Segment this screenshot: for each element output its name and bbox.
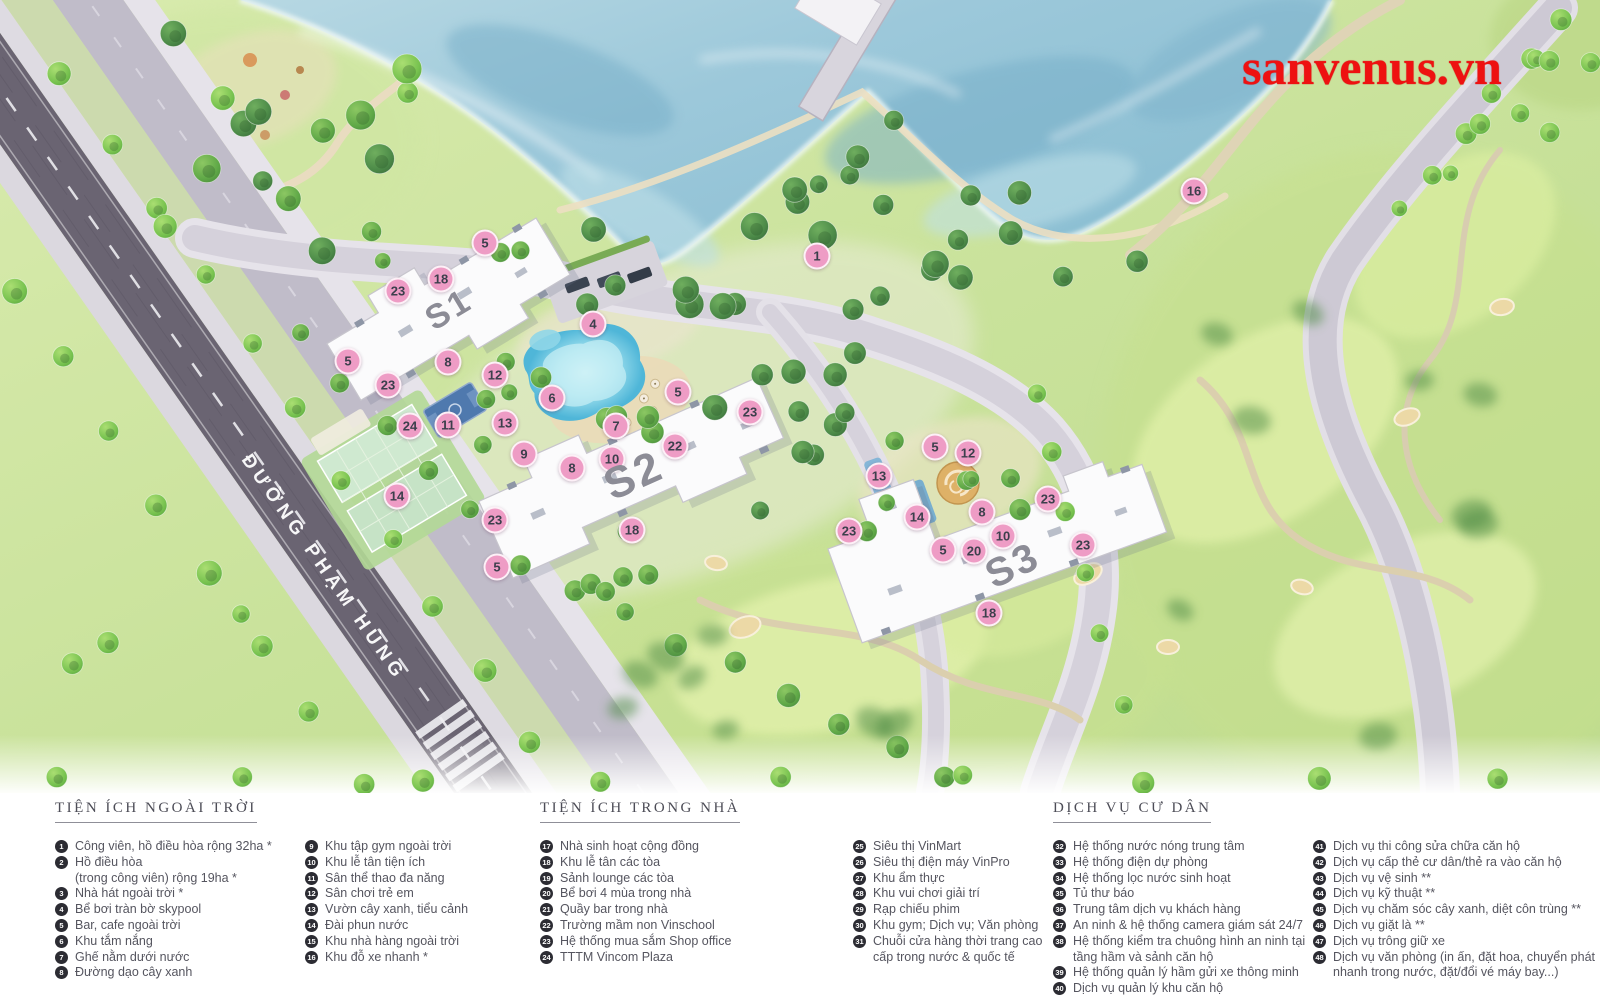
legend-item-text: Khu nhà hàng ngoài trời [325, 934, 459, 948]
legend-item: 2Hồ điều hòa [55, 855, 272, 871]
map-marker-23: 23 [737, 399, 764, 426]
map-marker-14: 14 [904, 504, 931, 531]
legend-item-number: 11 [305, 872, 318, 885]
map-marker-23: 23 [375, 372, 402, 399]
legend-item: 45Dịch vụ chăm sóc cây xanh, diệt côn tr… [1313, 902, 1595, 918]
legend-item-text: Dịch vụ thi công sửa chữa căn hộ [1333, 839, 1520, 853]
legend-item-text: Chuỗi cửa hàng thời trang cao [873, 934, 1042, 948]
legend-section-title-indoor: TIỆN ÍCH TRONG NHÀ [540, 800, 740, 823]
legend-item: 5Bar, cafe ngoài trời [55, 918, 272, 934]
map-marker-23: 23 [385, 278, 412, 305]
legend-item-number: 36 [1053, 903, 1066, 916]
legend-item: 18Khu lễ tân các tòa [540, 855, 731, 871]
legend-item-number: 10 [305, 856, 318, 869]
legend-item-number: 16 [305, 951, 318, 964]
map-marker-13: 13 [492, 410, 519, 437]
map-marker-5: 5 [922, 434, 949, 461]
legend-item-number: 8 [55, 966, 68, 979]
legend-item-number: 39 [1053, 966, 1066, 979]
legend-item: 19Sảnh lounge các tòa [540, 871, 731, 887]
map-marker-5: 5 [665, 379, 692, 406]
legend-item-text: Khu đỗ xe nhanh * [325, 950, 428, 964]
legend-item-text: Khu vui chơi giải trí [873, 886, 980, 900]
legend-item: 11Sân thể thao đa năng [305, 871, 468, 887]
map-marker-4: 4 [580, 311, 607, 338]
legend-item: 7Ghế nằm dưới nước [55, 950, 272, 966]
legend-item-text: Siêu thị VinMart [873, 839, 961, 853]
legend-item-number: 12 [305, 887, 318, 900]
legend-item-text: Khu ẩm thực [873, 871, 945, 885]
legend-item-text: Bể bơi tràn bờ skypool [75, 902, 201, 916]
legend-item: 36Trung tâm dịch vụ khách hàng [1053, 902, 1305, 918]
legend-item: 37An ninh & hệ thống camera giám sát 24/… [1053, 918, 1305, 934]
legend-item-number: 14 [305, 919, 318, 932]
legend-item-text: TTTM Vincom Plaza [560, 950, 673, 964]
legend-item: 48Dịch vụ văn phòng (in ấn, đặt hoa, chu… [1313, 950, 1595, 966]
legend-item: 30Khu gym; Dịch vụ; Văn phòng [853, 918, 1042, 934]
legend-item-number: 25 [853, 840, 866, 853]
legend-item-text: Dịch vụ kỹ thuật ** [1333, 886, 1435, 900]
legend-item-number: 35 [1053, 887, 1066, 900]
legend-item: 10Khu lễ tân tiện ích [305, 855, 468, 871]
legend-item: 24TTTM Vincom Plaza [540, 950, 731, 966]
map-marker-9: 9 [511, 441, 538, 468]
legend-item-number: 34 [1053, 872, 1066, 885]
watermark: sanvenus.vn [1242, 38, 1502, 96]
legend-item-text: Công viên, hồ điều hòa rộng 32ha * [75, 839, 272, 853]
legend-item-text: Khu tập gym ngoài trời [325, 839, 451, 853]
legend-item-number: 18 [540, 856, 553, 869]
map-marker-18: 18 [976, 600, 1003, 627]
legend-item-number: 3 [55, 887, 68, 900]
map-marker-8: 8 [559, 455, 586, 482]
map-marker-16: 16 [1181, 178, 1208, 205]
legend-item-number: 45 [1313, 903, 1326, 916]
legend-item: 20Bể bơi 4 mùa trong nhà [540, 886, 731, 902]
legend-item: 1Công viên, hồ điều hòa rộng 32ha * [55, 839, 272, 855]
legend-item-number: 43 [1313, 872, 1326, 885]
legend-item-number: 40 [1053, 982, 1066, 995]
legend-item-number: 2 [55, 856, 68, 869]
legend-item-text: Ghế nằm dưới nước [75, 950, 189, 964]
legend-item: 46Dịch vụ giặt là ** [1313, 918, 1595, 934]
site-plan-page: 1165182345812236511132472322910814231855… [0, 0, 1600, 1000]
map-marker-1: 1 [804, 243, 831, 270]
legend-item: 28Khu vui chơi giải trí [853, 886, 1042, 902]
legend-item-text: Hệ thống mua sắm Shop office [560, 934, 731, 948]
legend-item: 15Khu nhà hàng ngoài trời [305, 934, 468, 950]
legend-column: 17Nhà sinh hoạt cộng đồng18Khu lễ tân cá… [540, 839, 731, 965]
legend-section-title-outdoor: TIỆN ÍCH NGOÀI TRỜI [55, 800, 257, 823]
legend-item-number: 29 [853, 903, 866, 916]
legend-item: 12Sân chơi trẻ em [305, 886, 468, 902]
legend-item-number: 48 [1313, 951, 1326, 964]
legend-item-number: 13 [305, 903, 318, 916]
legend-item: 26Siêu thị điện máy VinPro [853, 855, 1042, 871]
legend-item-text: Sân thể thao đa năng [325, 871, 445, 885]
legend-item-text-line2: nhanh trong nước, đặt/đổi vé máy bay...) [1313, 965, 1595, 981]
legend-item-text: Bể bơi 4 mùa trong nhà [560, 886, 691, 900]
legend-item-number: 41 [1313, 840, 1326, 853]
map-marker-11: 11 [435, 412, 462, 439]
legend-item-number: 17 [540, 840, 553, 853]
legend-item: 23Hệ thống mua sắm Shop office [540, 934, 731, 950]
legend-item-number: 37 [1053, 919, 1066, 932]
legend-item: 32Hệ thống nước nóng trung tâm [1053, 839, 1305, 855]
legend-item-text-line2: tầng hầm và sảnh căn hộ [1053, 950, 1305, 966]
legend-item-number: 44 [1313, 887, 1326, 900]
legend-item: 34Hệ thống lọc nước sinh hoạt [1053, 871, 1305, 887]
map-marker-7: 7 [603, 413, 630, 440]
legend-item-text: Dịch vụ quản lý khu căn hộ [1073, 981, 1223, 995]
legend-item-text: Dịch vụ chăm sóc cây xanh, diệt côn trùn… [1333, 902, 1581, 916]
legend-column: 1Công viên, hồ điều hòa rộng 32ha *2Hồ đ… [55, 839, 272, 981]
legend-item: 6Khu tắm nắng [55, 934, 272, 950]
legend-item-text: Dịch vụ vệ sinh ** [1333, 871, 1431, 885]
legend-item-text: Khu tắm nắng [75, 934, 153, 948]
legend-item-number: 32 [1053, 840, 1066, 853]
legend-item-number: 6 [55, 935, 68, 948]
legend-item-number: 20 [540, 887, 553, 900]
legend-item-text: Hệ thống lọc nước sinh hoạt [1073, 871, 1231, 885]
legend-item-text: Nhà sinh hoạt cộng đồng [560, 839, 699, 853]
map-marker-12: 12 [955, 440, 982, 467]
legend-item-text: An ninh & hệ thống camera giám sát 24/7 [1073, 918, 1303, 932]
legend-item: 33Hệ thống điện dự phòng [1053, 855, 1305, 871]
legend-column: 41Dịch vụ thi công sửa chữa căn hộ42Dịch… [1313, 839, 1595, 981]
legend-item-number: 5 [55, 919, 68, 932]
legend-item: 14Đài phun nước [305, 918, 468, 934]
map-marker-22: 22 [662, 433, 689, 460]
legend-item-number: 38 [1053, 935, 1066, 948]
map-marker-6: 6 [539, 385, 566, 412]
master-plan-illustration [0, 0, 1600, 795]
legend-item: 38Hệ thống kiểm tra chuông hình an ninh … [1053, 934, 1305, 950]
legend-item-text: Hệ thống kiểm tra chuông hình an ninh tạ… [1073, 934, 1305, 948]
legend-column: 25Siêu thị VinMart26Siêu thị điện máy Vi… [853, 839, 1042, 965]
legend-column: 32Hệ thống nước nóng trung tâm33Hệ thống… [1053, 839, 1305, 997]
legend-item-text: Dịch vụ văn phòng (in ấn, đặt hoa, chuyể… [1333, 950, 1595, 964]
map-marker-13: 13 [866, 463, 893, 490]
legend-item-text: Sân chơi trẻ em [325, 886, 414, 900]
map-marker-12: 12 [482, 362, 509, 389]
map-marker-8: 8 [435, 349, 462, 376]
map-marker-5: 5 [484, 554, 511, 581]
legend-item-number: 15 [305, 935, 318, 948]
map-marker-5: 5 [335, 348, 362, 375]
legend-item-text: Bar, cafe ngoài trời [75, 918, 180, 932]
legend-item-number: 27 [853, 872, 866, 885]
legend-item: 47Dịch vụ trông giữ xe [1313, 934, 1595, 950]
map-marker-5: 5 [930, 537, 957, 564]
legend-item: 13Vườn cây xanh, tiểu cảnh [305, 902, 468, 918]
legend-item-text: Nhà hát ngoài trời * [75, 886, 183, 900]
legend-item: 21Quầy bar trong nhà [540, 902, 731, 918]
legend-item-number: 30 [853, 919, 866, 932]
legend-item-number: 46 [1313, 919, 1326, 932]
legend: TIỆN ÍCH NGOÀI TRỜI TIỆN ÍCH TRONG NHÀ D… [0, 793, 1600, 1000]
legend-item-text: Rạp chiếu phim [873, 902, 960, 916]
legend-item-number: 24 [540, 951, 553, 964]
legend-item-number: 42 [1313, 856, 1326, 869]
legend-item-text: Đường dạo cây xanh [75, 965, 192, 979]
legend-item-text: Trung tâm dịch vụ khách hàng [1073, 902, 1241, 916]
legend-item-text: Vườn cây xanh, tiểu cảnh [325, 902, 468, 916]
legend-section-title-services: DỊCH VỤ CƯ DÂN [1053, 800, 1211, 823]
legend-item-number: 33 [1053, 856, 1066, 869]
legend-item-number: 1 [55, 840, 68, 853]
legend-item-text-line2: (trong công viên) rộng 19ha * [55, 871, 272, 887]
legend-item-text: Hệ thống nước nóng trung tâm [1073, 839, 1245, 853]
legend-item: 16Khu đỗ xe nhanh * [305, 950, 468, 966]
legend-item-text: Siêu thị điện máy VinPro [873, 855, 1010, 869]
legend-item-text: Khu gym; Dịch vụ; Văn phòng [873, 918, 1038, 932]
legend-column: 9Khu tập gym ngoài trời10Khu lễ tân tiện… [305, 839, 468, 965]
map-marker-5: 5 [472, 230, 499, 257]
legend-item-text: Khu lễ tân tiện ích [325, 855, 425, 869]
legend-item-number: 28 [853, 887, 866, 900]
legend-item-number: 7 [55, 951, 68, 964]
legend-item: 25Siêu thị VinMart [853, 839, 1042, 855]
legend-item: 31Chuỗi cửa hàng thời trang cao [853, 934, 1042, 950]
legend-item-text: Sảnh lounge các tòa [560, 871, 674, 885]
legend-item-number: 21 [540, 903, 553, 916]
legend-item: 42Dịch vụ cấp thẻ cư dân/thẻ ra vào căn … [1313, 855, 1595, 871]
legend-item-text: Dịch vụ giặt là ** [1333, 918, 1425, 932]
legend-item: 17Nhà sinh hoạt cộng đồng [540, 839, 731, 855]
legend-item-number: 26 [853, 856, 866, 869]
legend-item-number: 4 [55, 903, 68, 916]
legend-item: 43Dịch vụ vệ sinh ** [1313, 871, 1595, 887]
legend-item: 29Rạp chiếu phim [853, 902, 1042, 918]
legend-item: 22Trường mầm non Vinschool [540, 918, 731, 934]
legend-item-text: Quầy bar trong nhà [560, 902, 668, 916]
map-marker-23: 23 [482, 507, 509, 534]
legend-item: 44Dịch vụ kỹ thuật ** [1313, 886, 1595, 902]
map-marker-23: 23 [836, 518, 863, 545]
legend-item-number: 23 [540, 935, 553, 948]
legend-item-text: Trường mầm non Vinschool [560, 918, 715, 932]
legend-item: 8Đường dạo cây xanh [55, 965, 272, 981]
legend-item-number: 19 [540, 872, 553, 885]
legend-item-number: 47 [1313, 935, 1326, 948]
legend-item: 3Nhà hát ngoài trời * [55, 886, 272, 902]
legend-item-text: Khu lễ tân các tòa [560, 855, 660, 869]
legend-item: 39Hệ thống quản lý hầm gửi xe thông minh [1053, 965, 1305, 981]
legend-item-text: Tủ thư báo [1073, 886, 1134, 900]
legend-item: 40Dịch vụ quản lý khu căn hộ [1053, 981, 1305, 997]
legend-item-text: Hệ thống điện dự phòng [1073, 855, 1208, 869]
legend-item: 35Tủ thư báo [1053, 886, 1305, 902]
legend-item-number: 22 [540, 919, 553, 932]
map-marker-24: 24 [397, 413, 424, 440]
map-marker-23: 23 [1070, 532, 1097, 559]
legend-item: 9Khu tập gym ngoài trời [305, 839, 468, 855]
legend-item: 41Dịch vụ thi công sửa chữa căn hộ [1313, 839, 1595, 855]
legend-item-number: 31 [853, 935, 866, 948]
legend-item: 4Bể bơi tràn bờ skypool [55, 902, 272, 918]
legend-item-text: Dịch vụ trông giữ xe [1333, 934, 1445, 948]
legend-item-text: Đài phun nước [325, 918, 408, 932]
map-marker-18: 18 [619, 517, 646, 544]
map-marker-14: 14 [384, 483, 411, 510]
legend-item-number: 9 [305, 840, 318, 853]
map-marker-8: 8 [969, 499, 996, 526]
legend-item-text: Dịch vụ cấp thẻ cư dân/thẻ ra vào căn hộ [1333, 855, 1562, 869]
legend-item-text-line2: cấp trong nước & quốc tế [853, 950, 1042, 966]
map-marker-23: 23 [1035, 486, 1062, 513]
legend-item-text: Hệ thống quản lý hầm gửi xe thông minh [1073, 965, 1299, 979]
legend-item-text: Hồ điều hòa [75, 855, 142, 869]
legend-item: 27Khu ẩm thực [853, 871, 1042, 887]
